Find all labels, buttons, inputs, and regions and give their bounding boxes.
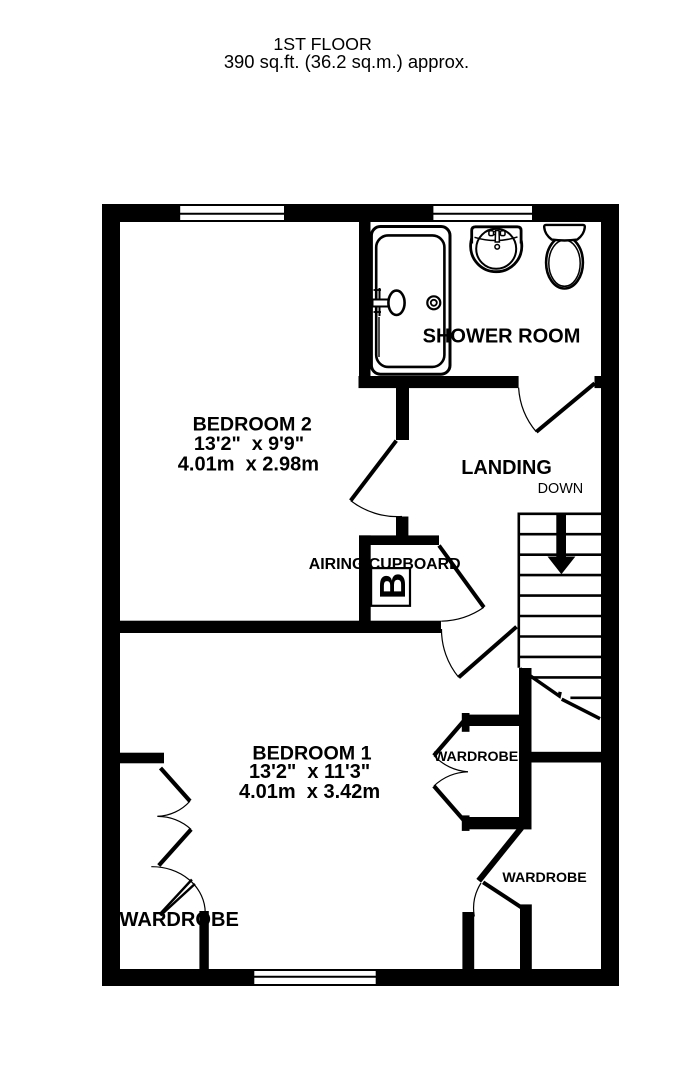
svg-text:B: B <box>372 573 413 599</box>
svg-text:LANDING: LANDING <box>461 457 552 479</box>
svg-text:WARDROBE: WARDROBE <box>434 749 518 765</box>
svg-text:4.01m x 3.42m: 4.01m x 3.42m <box>239 781 380 803</box>
svg-text:DOWN: DOWN <box>538 481 584 497</box>
svg-text:13'2" x 11'3": 13'2" x 11'3" <box>249 761 370 783</box>
svg-text:AIRING CUPBOARD: AIRING CUPBOARD <box>309 556 461 573</box>
svg-text:13'2" x 9'9": 13'2" x 9'9" <box>194 433 304 455</box>
svg-text:4.01m x 2.98m: 4.01m x 2.98m <box>178 453 319 475</box>
svg-text:390 sq.ft. (36.2 sq.m.) approx: 390 sq.ft. (36.2 sq.m.) approx. <box>224 51 469 72</box>
svg-text:SHOWER ROOM: SHOWER ROOM <box>423 326 581 348</box>
svg-text:WARDROBE: WARDROBE <box>119 909 238 931</box>
svg-text:WARDROBE: WARDROBE <box>502 870 586 886</box>
